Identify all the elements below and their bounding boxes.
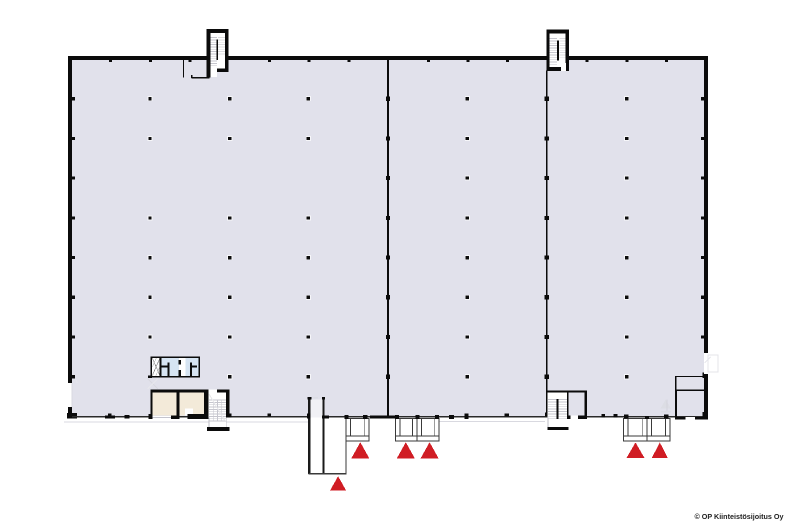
svg-text:© OP Kiinteistösijoitus Oy: © OP Kiinteistösijoitus Oy bbox=[694, 512, 783, 521]
